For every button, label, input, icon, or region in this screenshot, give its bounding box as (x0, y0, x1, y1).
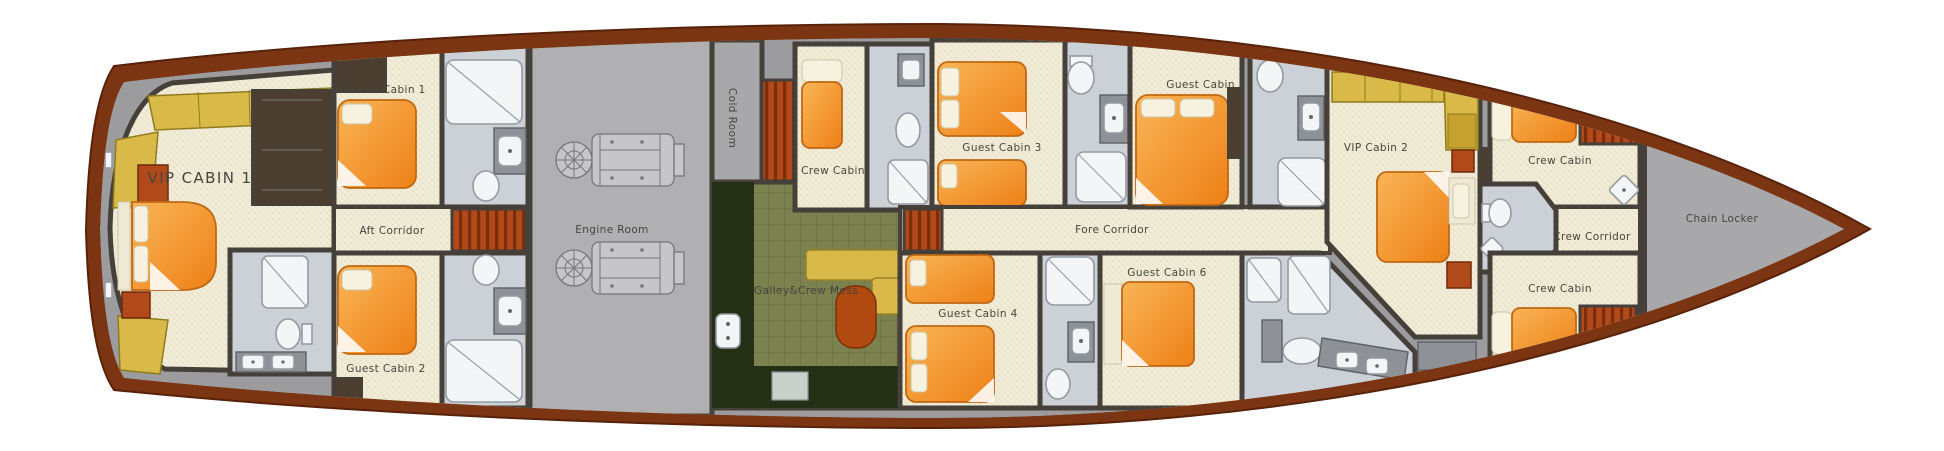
crew-cabin-mid-label: Crew Cabin (801, 165, 865, 177)
galley-crew-mess-label: Galley&Crew Mess (754, 285, 858, 297)
guest-cabin-5-label: Guest Cabin 5 (1166, 79, 1245, 91)
galley-fridge (772, 372, 808, 400)
aft-stairs (452, 209, 526, 251)
bathroom-guest-4-6 (1040, 253, 1100, 408)
crew-cabin-mid-bunk (802, 60, 842, 148)
engine-room-label: Engine Room (575, 224, 649, 236)
bathroom-guest-3-5 (1065, 40, 1130, 207)
guest-cabin-1-bathroom (442, 44, 528, 207)
galley-sink (716, 314, 740, 348)
porthole (105, 152, 112, 168)
guest-cabin-3-bed-2 (938, 160, 1026, 206)
guest-cabin-6-bed (1104, 282, 1194, 366)
guest-cabin-4-bed-1 (906, 255, 994, 303)
guest-cabin-3-label: Guest Cabin 3 (962, 142, 1041, 154)
vip-cabin-1-bathroom (230, 250, 334, 374)
fore-corridor-label: Fore Corridor (1075, 224, 1149, 236)
guest-cabin-4-bed-2 (906, 326, 994, 402)
guest-cabin-2-bed (338, 266, 416, 354)
guest-cabin-4-label: Guest Cabin 4 (938, 308, 1017, 320)
porthole (105, 282, 112, 298)
guest-cabin-5-bed (1136, 95, 1228, 205)
engine-port (556, 134, 684, 186)
vip-cabin-1-bed (118, 202, 216, 290)
vip-cabin-1-cabinet (122, 292, 150, 318)
aft-corridor-label: Aft Corridor (359, 225, 424, 237)
crew-bathroom-mid (867, 44, 932, 210)
chain-locker-label: Chain Locker (1686, 213, 1759, 225)
guest-cabin-2-bathroom (442, 253, 528, 408)
guest-cabin-1-bed (338, 100, 416, 188)
crew-corridor-label: Crew Corridor (1553, 231, 1631, 243)
guest-cabin-3-bed-1 (938, 62, 1026, 136)
vip-cabin-2-label: VIP Cabin 2 (1344, 142, 1408, 154)
crew-cabin-fwd-port-label: Crew Cabin (1528, 155, 1592, 167)
vip-cabin-1-wardrobe (252, 90, 332, 205)
engine-starboard (556, 242, 684, 294)
guest-cabin-2-label: Guest Cabin 2 (346, 363, 425, 375)
crew-cabin-fwd-starboard-label: Crew Cabin (1528, 283, 1592, 295)
vip-cabin-2-post (1452, 150, 1474, 172)
cold-room-label: Cold Room (726, 88, 738, 148)
deck-plan-canvas: VIP CABIN 1 Guest Cabin 1 Aft Corridor G… (0, 0, 1944, 451)
guest-cabin-5-wardrobe (1228, 88, 1242, 158)
deck-plan-svg: VIP CABIN 1 Guest Cabin 1 Aft Corridor G… (0, 0, 1944, 451)
guest-cabin-1-label: Guest Cabin 1 (346, 84, 425, 96)
vip-cabin-1-label: VIP CABIN 1 (148, 169, 253, 187)
vip-cabin-2-post (1447, 262, 1471, 288)
bathroom-guest-5 (1250, 48, 1327, 207)
guest-cabin-6-label: Guest Cabin 6 (1127, 267, 1206, 279)
fore-stairs (904, 209, 942, 251)
chain-locker (1644, 30, 1864, 420)
